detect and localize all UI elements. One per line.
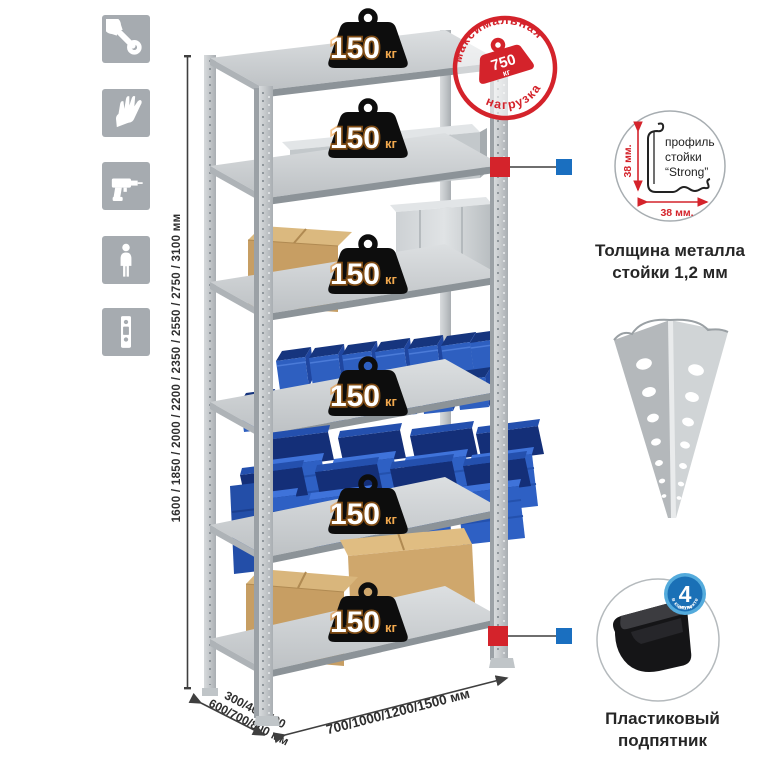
shelf-load-weight: 150 150 кг bbox=[318, 580, 418, 646]
svg-text:кг: кг bbox=[385, 620, 398, 635]
svg-text:150: 150 bbox=[330, 380, 380, 413]
svg-text:150: 150 bbox=[330, 258, 380, 291]
shelf-load-weight: 150 150 кг bbox=[318, 354, 418, 420]
foot-marker-blue bbox=[556, 628, 572, 644]
svg-text:кг: кг bbox=[385, 512, 398, 527]
svg-text:150: 150 bbox=[330, 606, 380, 639]
svg-text:кг: кг bbox=[385, 272, 398, 287]
shelving-infographic: 150 150 кг 150 150 кг 150 150 кг 150 150… bbox=[0, 0, 765, 765]
shelf-load-weight: 150 150 кг bbox=[318, 96, 418, 162]
svg-text:150: 150 bbox=[330, 498, 380, 531]
foot-marker-red bbox=[488, 626, 508, 646]
svg-text:кг: кг bbox=[385, 394, 398, 409]
svg-text:кг: кг bbox=[385, 136, 398, 151]
max-load-stamp: максимальная нагрузка 750 кг bbox=[445, 8, 565, 128]
profile-marker-red bbox=[490, 157, 510, 177]
profile-marker-blue bbox=[556, 159, 572, 175]
shelf-load-weight: 150 150 кг bbox=[318, 6, 418, 72]
svg-text:150: 150 bbox=[330, 122, 380, 155]
svg-text:кг: кг bbox=[385, 46, 398, 61]
shelf-load-weight: 150 150 кг bbox=[318, 232, 418, 298]
shelf-load-weight: 150 150 кг bbox=[318, 472, 418, 538]
svg-text:150: 150 bbox=[330, 32, 380, 65]
